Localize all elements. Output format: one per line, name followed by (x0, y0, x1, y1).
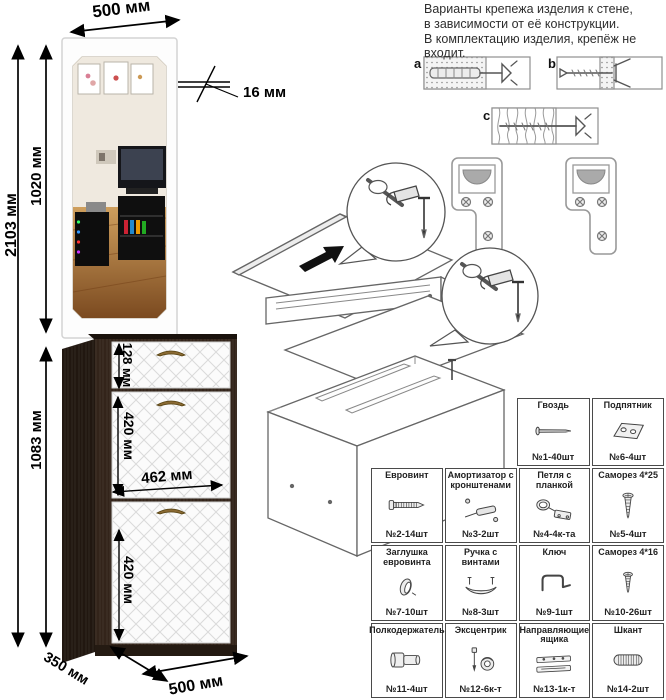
picture-frames (78, 62, 153, 94)
hanger-plate-left (452, 158, 502, 254)
shoe-cabinet (62, 334, 237, 663)
part-label: Петля с планкой (521, 471, 589, 490)
hanger-plates (452, 158, 616, 254)
wall-option-a-label: a (414, 56, 422, 71)
dimension-width-top: 500 мм (91, 0, 151, 22)
mounting-note: Варианты крепежа изделия к стене, в зави… (424, 2, 666, 61)
part-cell: Саморез 4*25№5-4шт (592, 468, 664, 543)
part-label: Направляющие ящика (520, 626, 590, 645)
part-qty: №6-4шт (609, 452, 646, 463)
part-cell: Подпятник№6-4шт (592, 398, 665, 466)
wall-option-c: c (483, 108, 598, 144)
mounting-note-line: в зависимости от её конструкции. (424, 17, 666, 32)
confirmat-icon (373, 481, 441, 530)
part-cell: Заглушка евровинта№7-10шт (371, 545, 443, 620)
callout-bubble (347, 163, 445, 261)
part-cell: Ручка с винтами№8-3шт (445, 545, 517, 620)
part-qty: №11-4шт (386, 684, 428, 695)
mounting-note-line: входит. (424, 46, 666, 61)
part-label: Эксцентрик (455, 626, 507, 636)
part-qty: №7-10шт (386, 607, 428, 618)
mounting-note-line: Варианты крепежа изделия к стене, (424, 2, 666, 17)
part-label: Подпятник (604, 401, 652, 411)
part-qty: №3-2шт (462, 529, 499, 540)
part-cell: Шкант№14-2шт (592, 623, 664, 698)
part-label: Амортизатор с кронштенами (447, 471, 515, 490)
part-cell: Эксцентрик№12-6к-т (445, 623, 517, 698)
cap-icon (373, 568, 441, 607)
part-cell: Полкодержатель№11-4шт (371, 623, 443, 698)
part-label: Ручка с винтами (447, 548, 515, 567)
part-qty: №5-4шт (610, 529, 647, 540)
hinge-icon (521, 490, 589, 529)
wall-option-c-label: c (483, 108, 490, 123)
part-label: Евровинт (385, 471, 428, 481)
part-qty: №9-1шт (536, 607, 573, 618)
callout-bubble (442, 248, 538, 344)
handle-icon (447, 568, 515, 607)
part-cell: Евровинт№2-14шт (371, 468, 443, 543)
part-qty: №1-40шт (532, 452, 574, 463)
thickness-callout (178, 66, 238, 102)
part-qty: №13-1к-т (533, 684, 575, 695)
part-label: Шкант (614, 626, 642, 636)
dimension-door1-height: 420 мм (121, 412, 137, 460)
slides-icon (521, 645, 589, 684)
hardware-table-top: Гвоздь№1-40штПодпятник№6-4шт (517, 398, 664, 466)
part-cell: Амортизатор с кронштенами№3-2шт (445, 468, 517, 543)
dimension-width-bottom: 500 мм (167, 672, 224, 698)
heel-icon (594, 411, 663, 452)
wall-fixing-options: a b c (414, 56, 662, 144)
screw16-icon (594, 558, 662, 607)
dimension-thickness: 16 мм (243, 84, 286, 101)
dimension-total-height: 2103 мм (3, 193, 20, 257)
part-cell: Гвоздь№1-40шт (517, 398, 590, 466)
part-qty: №8-3шт (462, 607, 499, 618)
part-qty: №4-4к-та (533, 529, 575, 540)
dimension-cabinet-height: 1083 мм (28, 410, 45, 470)
screw25-icon (594, 481, 662, 530)
part-cell: Саморез 4*16№10-26шт (592, 545, 664, 620)
hardware-table-main: Евровинт№2-14штАмортизатор с кронштенами… (371, 468, 664, 698)
cam-icon (447, 635, 515, 684)
part-qty: №10-26шт (604, 607, 651, 618)
part-qty: №2-14шт (386, 529, 428, 540)
mounting-note-line: В комплектацию изделия, крепёж не (424, 32, 666, 47)
hanger-plate-right (566, 158, 616, 254)
dimension-door2-height: 420 мм (121, 556, 137, 604)
nail-icon (519, 411, 588, 452)
part-cell: Петля с планкой№4-4к-та (519, 468, 591, 543)
part-label: Гвоздь (538, 401, 569, 411)
hexkey-icon (521, 558, 589, 607)
dimension-mirror-height: 1020 мм (28, 146, 45, 206)
furniture-diagram: 500 мм 16 мм 2103 мм 1020 мм 1083 мм 128… (3, 0, 286, 699)
part-qty: №14-2шт (607, 684, 649, 695)
part-cell: Ключ№9-1шт (519, 545, 591, 620)
dimension-drawer-height: 128 мм (120, 343, 135, 388)
part-cell: Направляющие ящика№13-1к-т (519, 623, 591, 698)
damper-icon (447, 490, 515, 529)
part-label: Саморез 4*16 (598, 548, 658, 558)
shelfsup-icon (373, 635, 441, 684)
mirror-reflection (73, 57, 166, 318)
mirror-panel (62, 38, 177, 338)
part-label: Ключ (542, 548, 566, 558)
part-label: Заглушка евровинта (373, 548, 441, 567)
part-label: Саморез 4*25 (598, 471, 658, 481)
dowel-icon (594, 635, 662, 684)
tv-unit (118, 146, 166, 260)
part-qty: №12-6к-т (460, 684, 502, 695)
part-label: Полкодержатель (369, 626, 444, 636)
